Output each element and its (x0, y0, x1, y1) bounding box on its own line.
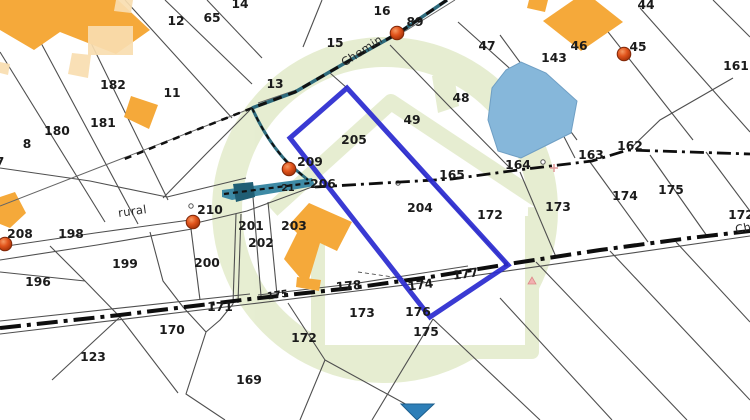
parcel-number-label: 164 (505, 158, 531, 172)
parcel-number-label: 206 (310, 177, 336, 191)
address-point-dot (186, 215, 200, 229)
parcel-number-label: 13 (266, 77, 283, 91)
parcel-number-label: 171 (207, 300, 233, 314)
parcel-number-label: 208 (7, 227, 33, 241)
parcel-number-label: 49 (403, 113, 420, 127)
parcel-number-label: 21 (281, 183, 294, 194)
parcel-number-label: 65 (203, 11, 220, 25)
parcel-number-label: 15 (326, 36, 343, 50)
parcel-number-label: 201 (238, 219, 264, 233)
parcel-number-label: 202 (248, 236, 274, 250)
parcel-number-label: 48 (452, 91, 469, 105)
parcel-number-label: 210 (197, 203, 223, 217)
parcel-number-label: 165 (439, 168, 465, 182)
parcel-number-label: 46 (570, 39, 587, 53)
parcel-number-label: 44 (637, 0, 654, 12)
parcel-number-label: 175 (413, 325, 439, 339)
parcel-number-label: 143 (541, 51, 567, 65)
parcel-number-label: 174 (612, 189, 638, 203)
parcel-number-label: 14 (231, 0, 248, 11)
parcel-number-label: 172 (477, 208, 503, 222)
parcel-number-label: 161 (723, 59, 749, 73)
cadastral-map: 1465121689441547464514316113182114849181… (0, 0, 750, 420)
parcel-number-label: 198 (58, 227, 84, 241)
parcel-number-label: 163 (578, 148, 604, 162)
parcel-number-label: 176 (405, 305, 431, 319)
parcel-number-label: 204 (407, 201, 433, 215)
address-point-dot (282, 162, 296, 176)
parcel-number-label: 8 (23, 137, 32, 151)
parcel-number-label: 182 (100, 78, 126, 92)
parcel-number-label: 178 (335, 278, 362, 294)
parcel-number-label: 170 (159, 323, 185, 337)
parcel-number-label: 209 (297, 155, 323, 169)
parcel-number-label: 11 (163, 86, 180, 100)
parcel-number-label: 205 (341, 133, 367, 147)
parcel-number-label: 12 (167, 14, 184, 28)
parcel-number-label: 89 (406, 15, 423, 29)
building-footprint-light (88, 26, 133, 55)
parcel-number-label: 199 (112, 257, 138, 271)
parcel-number-label: 7 (0, 155, 4, 169)
parcel-number-label: 203 (281, 219, 307, 233)
parcel-number-label: 196 (25, 275, 51, 289)
parcel-number-label: 123 (80, 350, 106, 364)
parcel-number-label: 181 (90, 116, 116, 130)
road-label: Ch (734, 220, 750, 237)
parcel-number-label: 172 (291, 331, 317, 345)
parcel-number-label: 175 (658, 183, 684, 197)
cadastral-map-viewport: 1465121689441547464514316113182114849181… (0, 0, 750, 420)
parcel-number-label: 173 (349, 306, 375, 320)
parcel-number-label: 47 (478, 39, 495, 53)
parcel-number-label: 16 (373, 4, 390, 18)
parcel-number-label: 169 (236, 373, 262, 387)
parcel-number-label: 200 (194, 256, 220, 270)
parcel-number-label: 45 (629, 40, 646, 54)
address-point-dot (390, 26, 404, 40)
parcel-number-label: 162 (617, 139, 643, 153)
parcel-number-label: 180 (44, 124, 70, 138)
building-footprint-light (114, 0, 133, 13)
parcel-number-label: 173 (545, 200, 571, 214)
building-footprint-light (68, 53, 91, 78)
